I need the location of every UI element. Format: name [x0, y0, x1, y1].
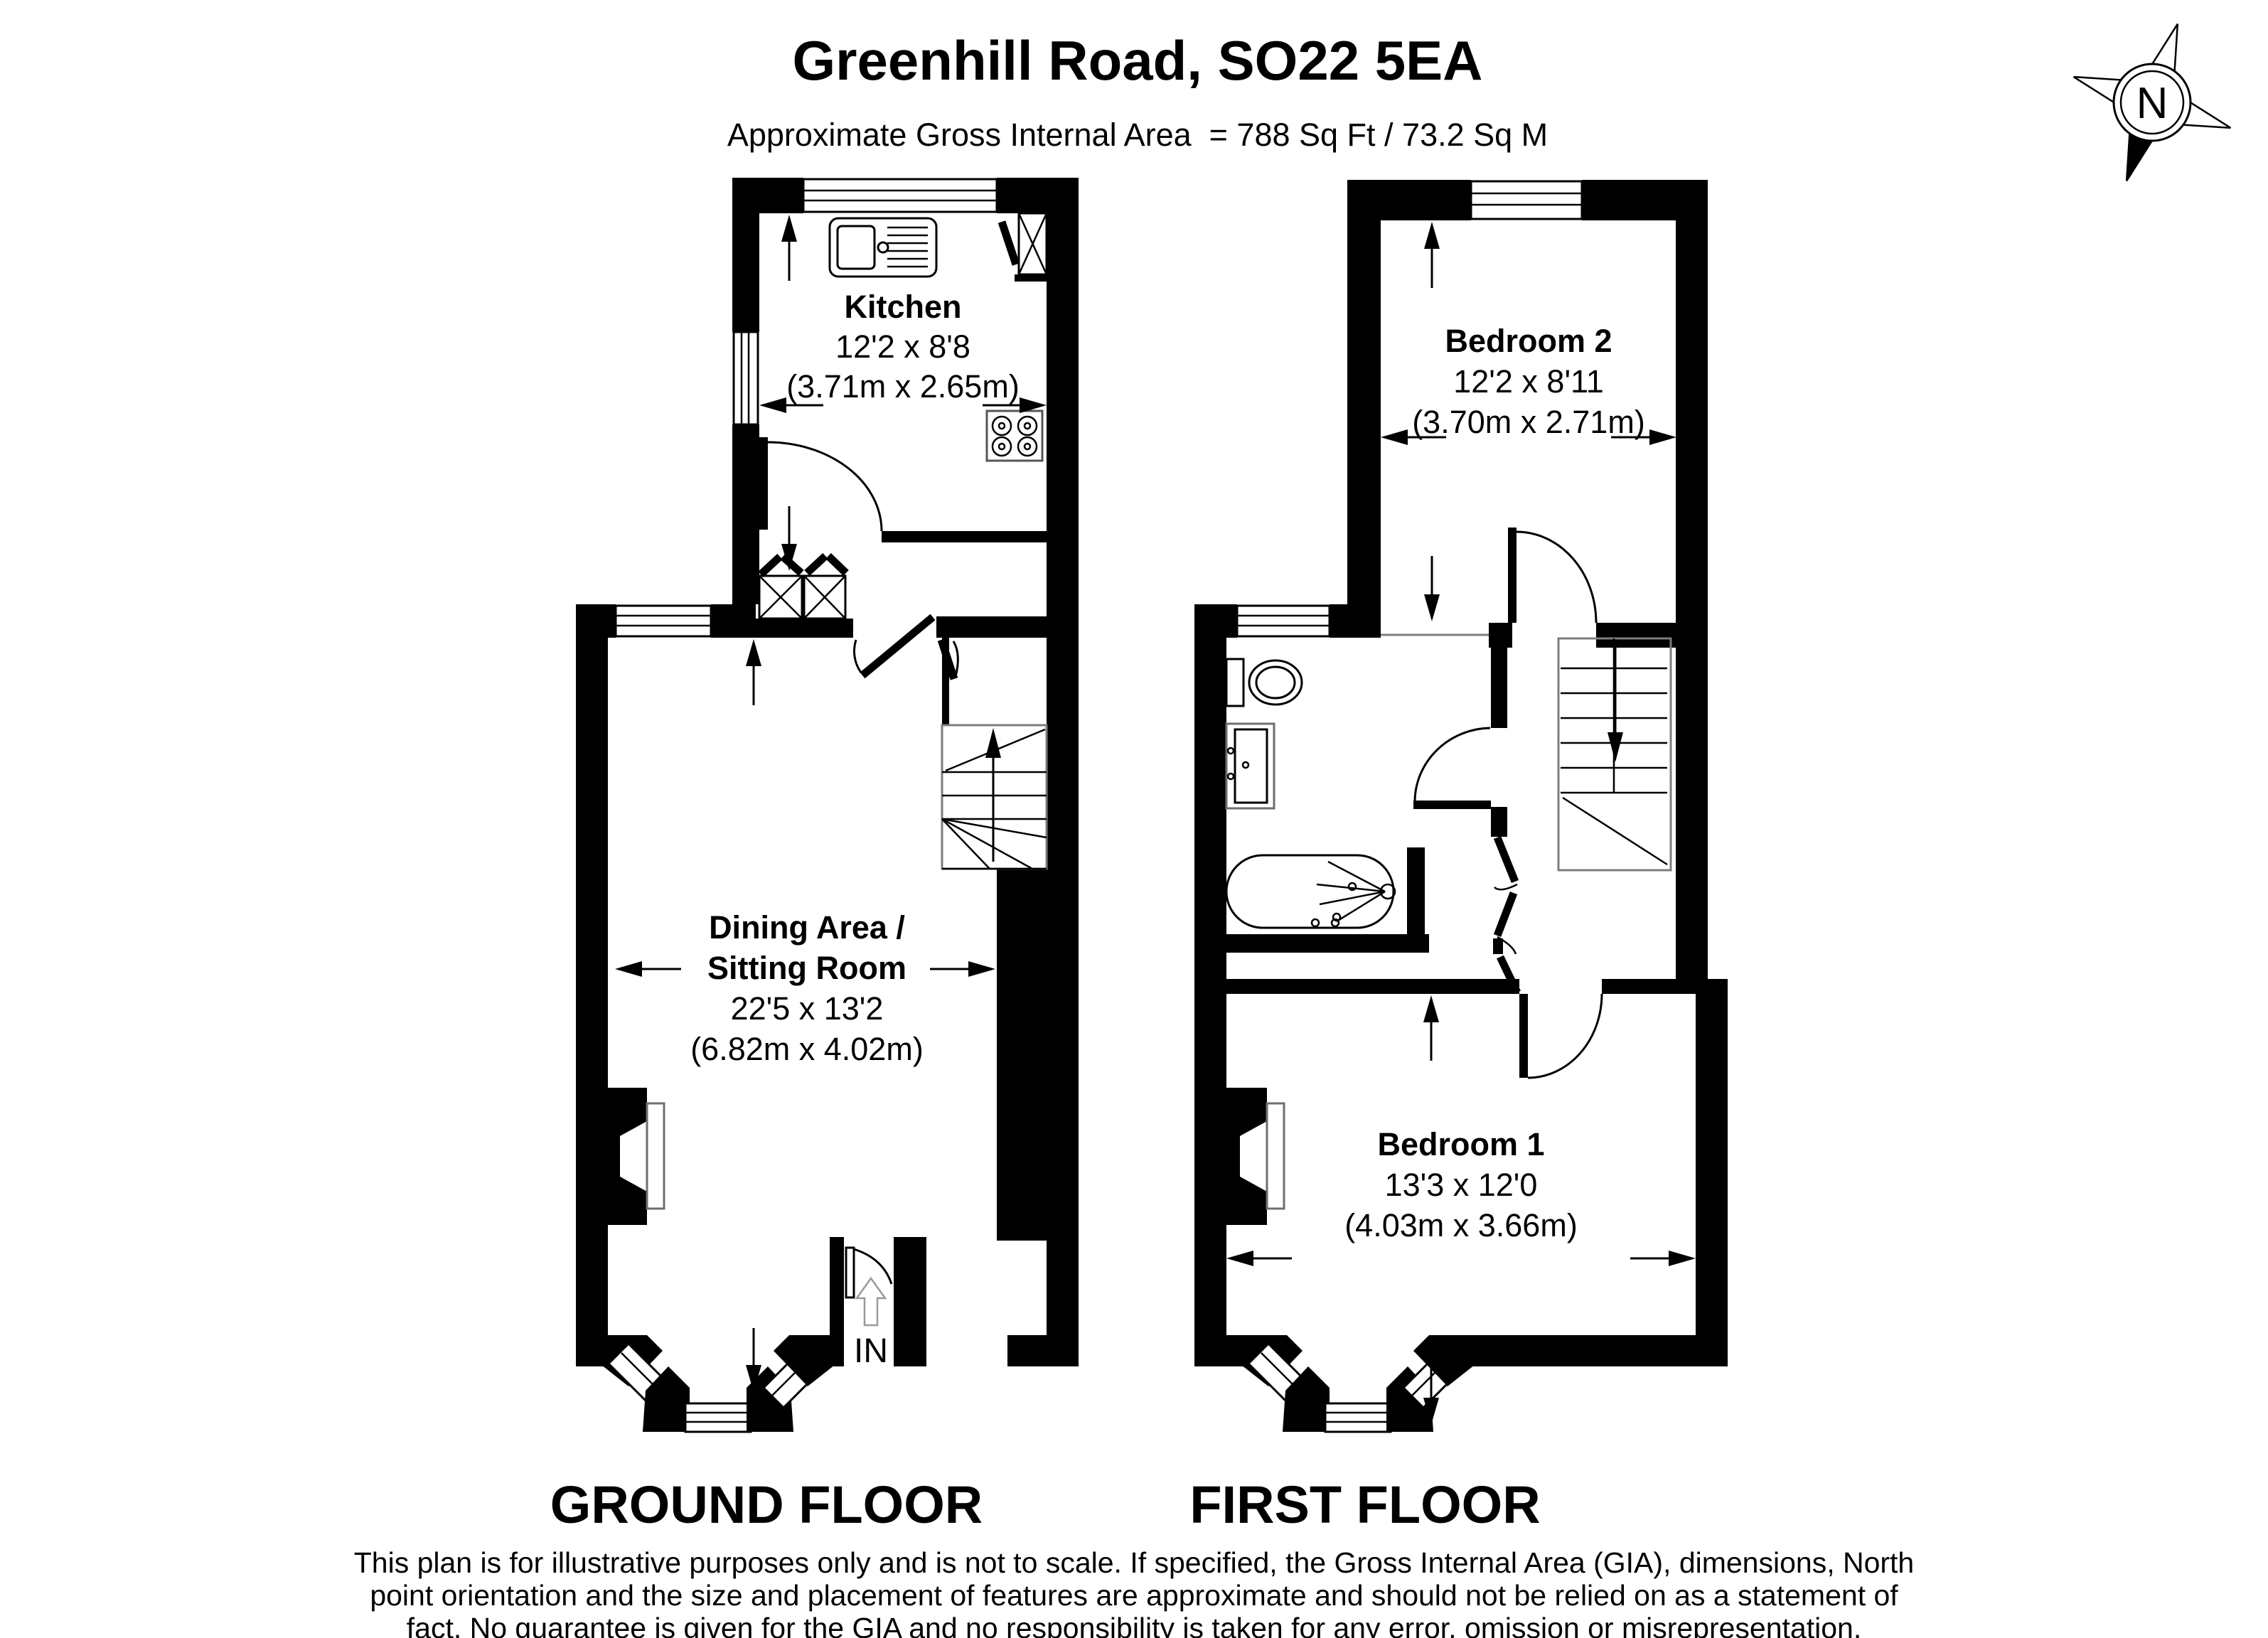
compass-n-label: N — [2136, 79, 2168, 128]
dining-size-metric: (6.82m x 4.02m) — [690, 1031, 924, 1067]
page-subtitle: Approximate Gross Internal Area = 788 Sq… — [727, 117, 1548, 153]
entrance-label: IN — [854, 1332, 888, 1370]
landing-cupboard-doors — [1494, 837, 1517, 992]
dining-size-imperial: 22'5 x 13'2 — [731, 990, 884, 1027]
kitchen-window-left — [734, 332, 758, 424]
bedroom1-size-metric: (4.03m x 3.66m) — [1344, 1207, 1578, 1243]
kitchen-door — [759, 437, 882, 531]
disclaimer: This plan is for illustrative purposes o… — [354, 1546, 1915, 1638]
bedroom2-name: Bedroom 2 — [1445, 323, 1612, 359]
bedroom1-name: Bedroom 1 — [1377, 1126, 1544, 1162]
stairs-down-arrow — [1608, 732, 1623, 762]
kitchen-size-imperial: 12'2 x 8'8 — [835, 328, 970, 365]
hob — [987, 411, 1042, 461]
basin — [1226, 724, 1274, 808]
page-title: Greenhill Road, SO22 5EA — [793, 29, 1483, 92]
first-floor-plan: Bedroom 2 12'2 x 8'11 (3.70m x 2.71m) Be… — [1189, 180, 1728, 1534]
staircase-ground — [942, 725, 1047, 869]
disclaimer-line2: point orientation and the size and place… — [370, 1579, 1898, 1612]
bedroom2-size-metric: (3.70m x 2.71m) — [1412, 404, 1645, 440]
bay-window-first — [1241, 1335, 1475, 1432]
bathtub — [1226, 855, 1395, 928]
bedroom2-size-imperial: 12'2 x 8'11 — [1453, 363, 1604, 400]
kitchen-sink — [830, 218, 936, 277]
disclaimer-line1: This plan is for illustrative purposes o… — [354, 1546, 1915, 1579]
entrance-arrow-icon — [857, 1278, 885, 1325]
floorplan-drawing: Greenhill Road, SO22 5EA Approximate Gro… — [0, 0, 2268, 1638]
kitchen-name: Kitchen — [844, 289, 961, 325]
dining-name-line2: Sitting Room — [707, 950, 906, 986]
bathroom-door — [1413, 728, 1491, 809]
dining-window-top — [616, 606, 711, 636]
ground-floor-plan: IN Kitchen 12'2 x 8'8 (3.71m x 2.65m) Di… — [550, 178, 1079, 1534]
bedroom2-window-top — [1471, 181, 1582, 219]
kitchen-cupboard — [1002, 213, 1047, 282]
entrance-door: IN — [846, 1248, 892, 1370]
toilet — [1226, 659, 1302, 706]
staircase-first — [1558, 638, 1671, 870]
stairs-up-arrow — [985, 728, 1001, 758]
bedroom1-size-imperial: 13'3 x 12'0 — [1385, 1167, 1538, 1203]
bathroom-window — [1237, 606, 1330, 636]
first-floor-label: FIRST FLOOR — [1189, 1475, 1540, 1534]
kitchen-size-metric: (3.71m x 2.65m) — [786, 368, 1020, 405]
floorplan-page: Greenhill Road, SO22 5EA Approximate Gro… — [0, 0, 2268, 1638]
bedroom1-door — [1519, 994, 1602, 1078]
disclaimer-line3: fact. No guarantee is given for the GIA … — [407, 1612, 1861, 1638]
kitchen-window-top — [803, 179, 997, 212]
dining-name-line1: Dining Area / — [709, 909, 905, 946]
first-floor-dimension-arrows — [1226, 222, 1696, 1425]
bay-window-ground — [601, 1335, 844, 1432]
understairs-cupboards — [759, 556, 846, 619]
bedroom2-door — [1508, 528, 1596, 623]
north-compass-icon: N — [2048, 0, 2256, 206]
ground-floor-label: GROUND FLOOR — [550, 1475, 983, 1534]
